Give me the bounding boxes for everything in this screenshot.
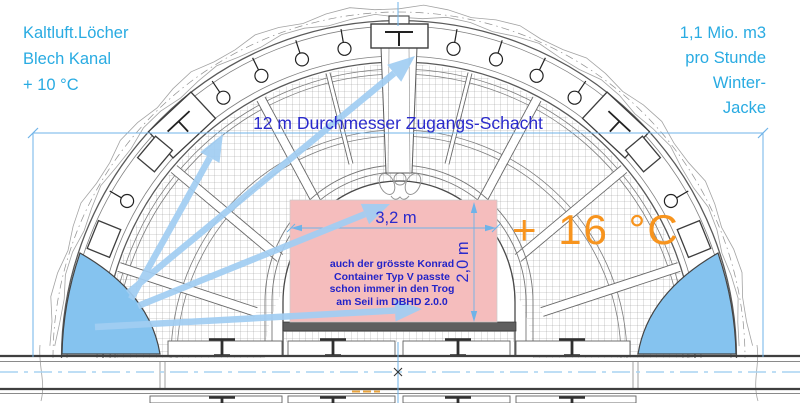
airflow-line1: 1,1 Mio. m3 xyxy=(680,21,766,46)
trough-width-label: 3,2 m xyxy=(331,209,461,228)
inside-temperature-label: + 16 °C xyxy=(512,206,680,254)
airflow-line3: Winter- xyxy=(680,71,766,96)
container-note-line2: Container Typ V passte xyxy=(287,271,497,284)
airflow-label: 1,1 Mio. m3 pro Stunde Winter- Jacke xyxy=(680,21,766,121)
cold-air-line1: Kaltluft.Löcher xyxy=(23,20,128,46)
container-note: auch der grösste Konrad Container Typ V … xyxy=(287,258,497,308)
cold-air-line2: Blech Kanal xyxy=(23,46,128,72)
cold-air-label: Kaltluft.Löcher Blech Kanal + 10 °C xyxy=(23,20,128,98)
container-note-line3: schon immer in den Trog xyxy=(287,283,497,296)
airflow-line2: pro Stunde xyxy=(680,46,766,71)
cold-air-line3: + 10 °C xyxy=(23,72,128,98)
container-note-line4: am Seil im DBHD 2.0.0 xyxy=(287,296,497,309)
shaft-diameter-label: 12 m Durchmesser Zugangs-Schacht xyxy=(228,113,568,134)
container-note-line1: auch der grösste Konrad xyxy=(287,258,497,271)
tunnel-cross-section-diagram: Kaltluft.Löcher Blech Kanal + 10 °C 1,1 … xyxy=(0,0,800,403)
airflow-line4: Jacke xyxy=(680,96,766,121)
